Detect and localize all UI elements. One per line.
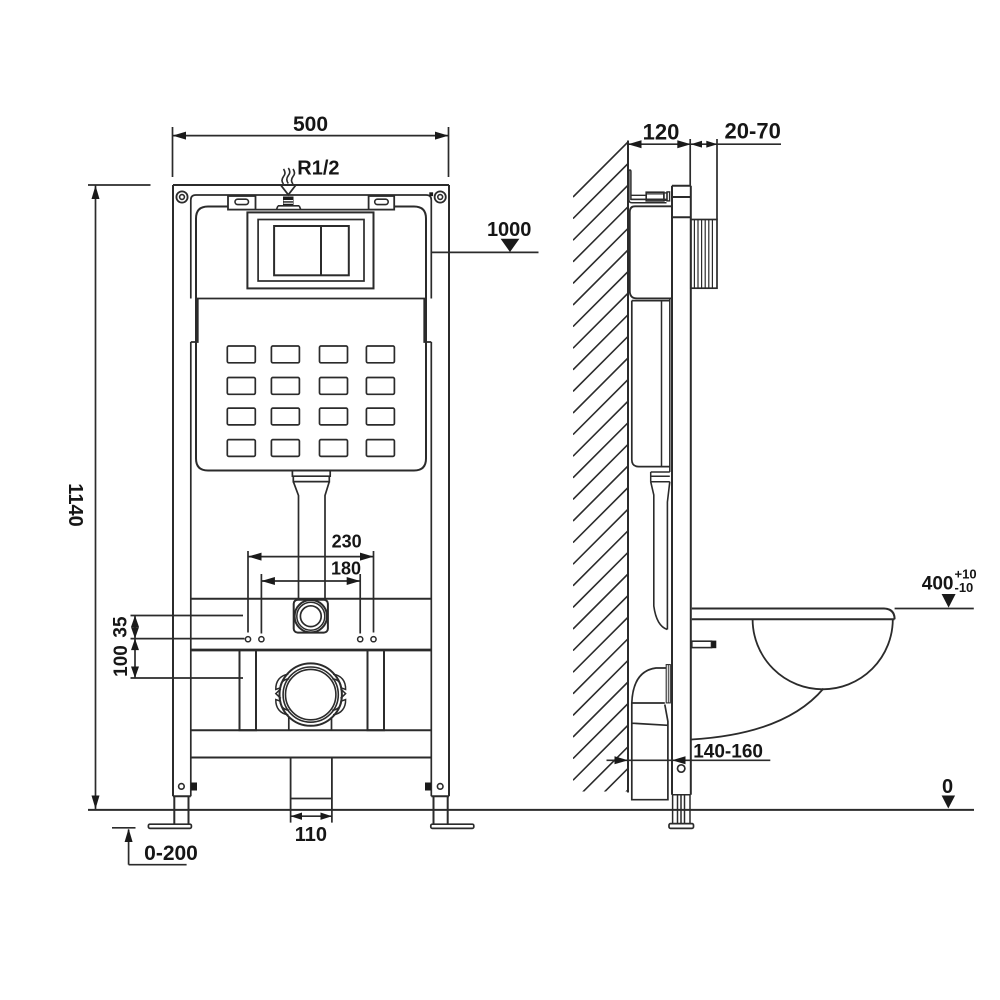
svg-text:1000: 1000: [487, 219, 532, 241]
svg-text:140-160: 140-160: [693, 742, 763, 763]
svg-text:-10: -10: [955, 580, 974, 595]
svg-text:230: 230: [332, 531, 362, 551]
svg-text:35: 35: [111, 616, 132, 638]
svg-text:100: 100: [111, 645, 132, 677]
svg-text:0: 0: [942, 776, 953, 798]
svg-text:180: 180: [331, 559, 361, 579]
svg-text:110: 110: [295, 824, 327, 846]
svg-text:R1/2: R1/2: [297, 157, 339, 179]
svg-text:0-200: 0-200: [144, 842, 198, 865]
svg-text:400: 400: [922, 574, 954, 595]
svg-text:500: 500: [293, 113, 328, 136]
svg-text:20-70: 20-70: [725, 119, 781, 144]
svg-text:1140: 1140: [64, 483, 86, 526]
svg-text:120: 120: [643, 119, 680, 144]
